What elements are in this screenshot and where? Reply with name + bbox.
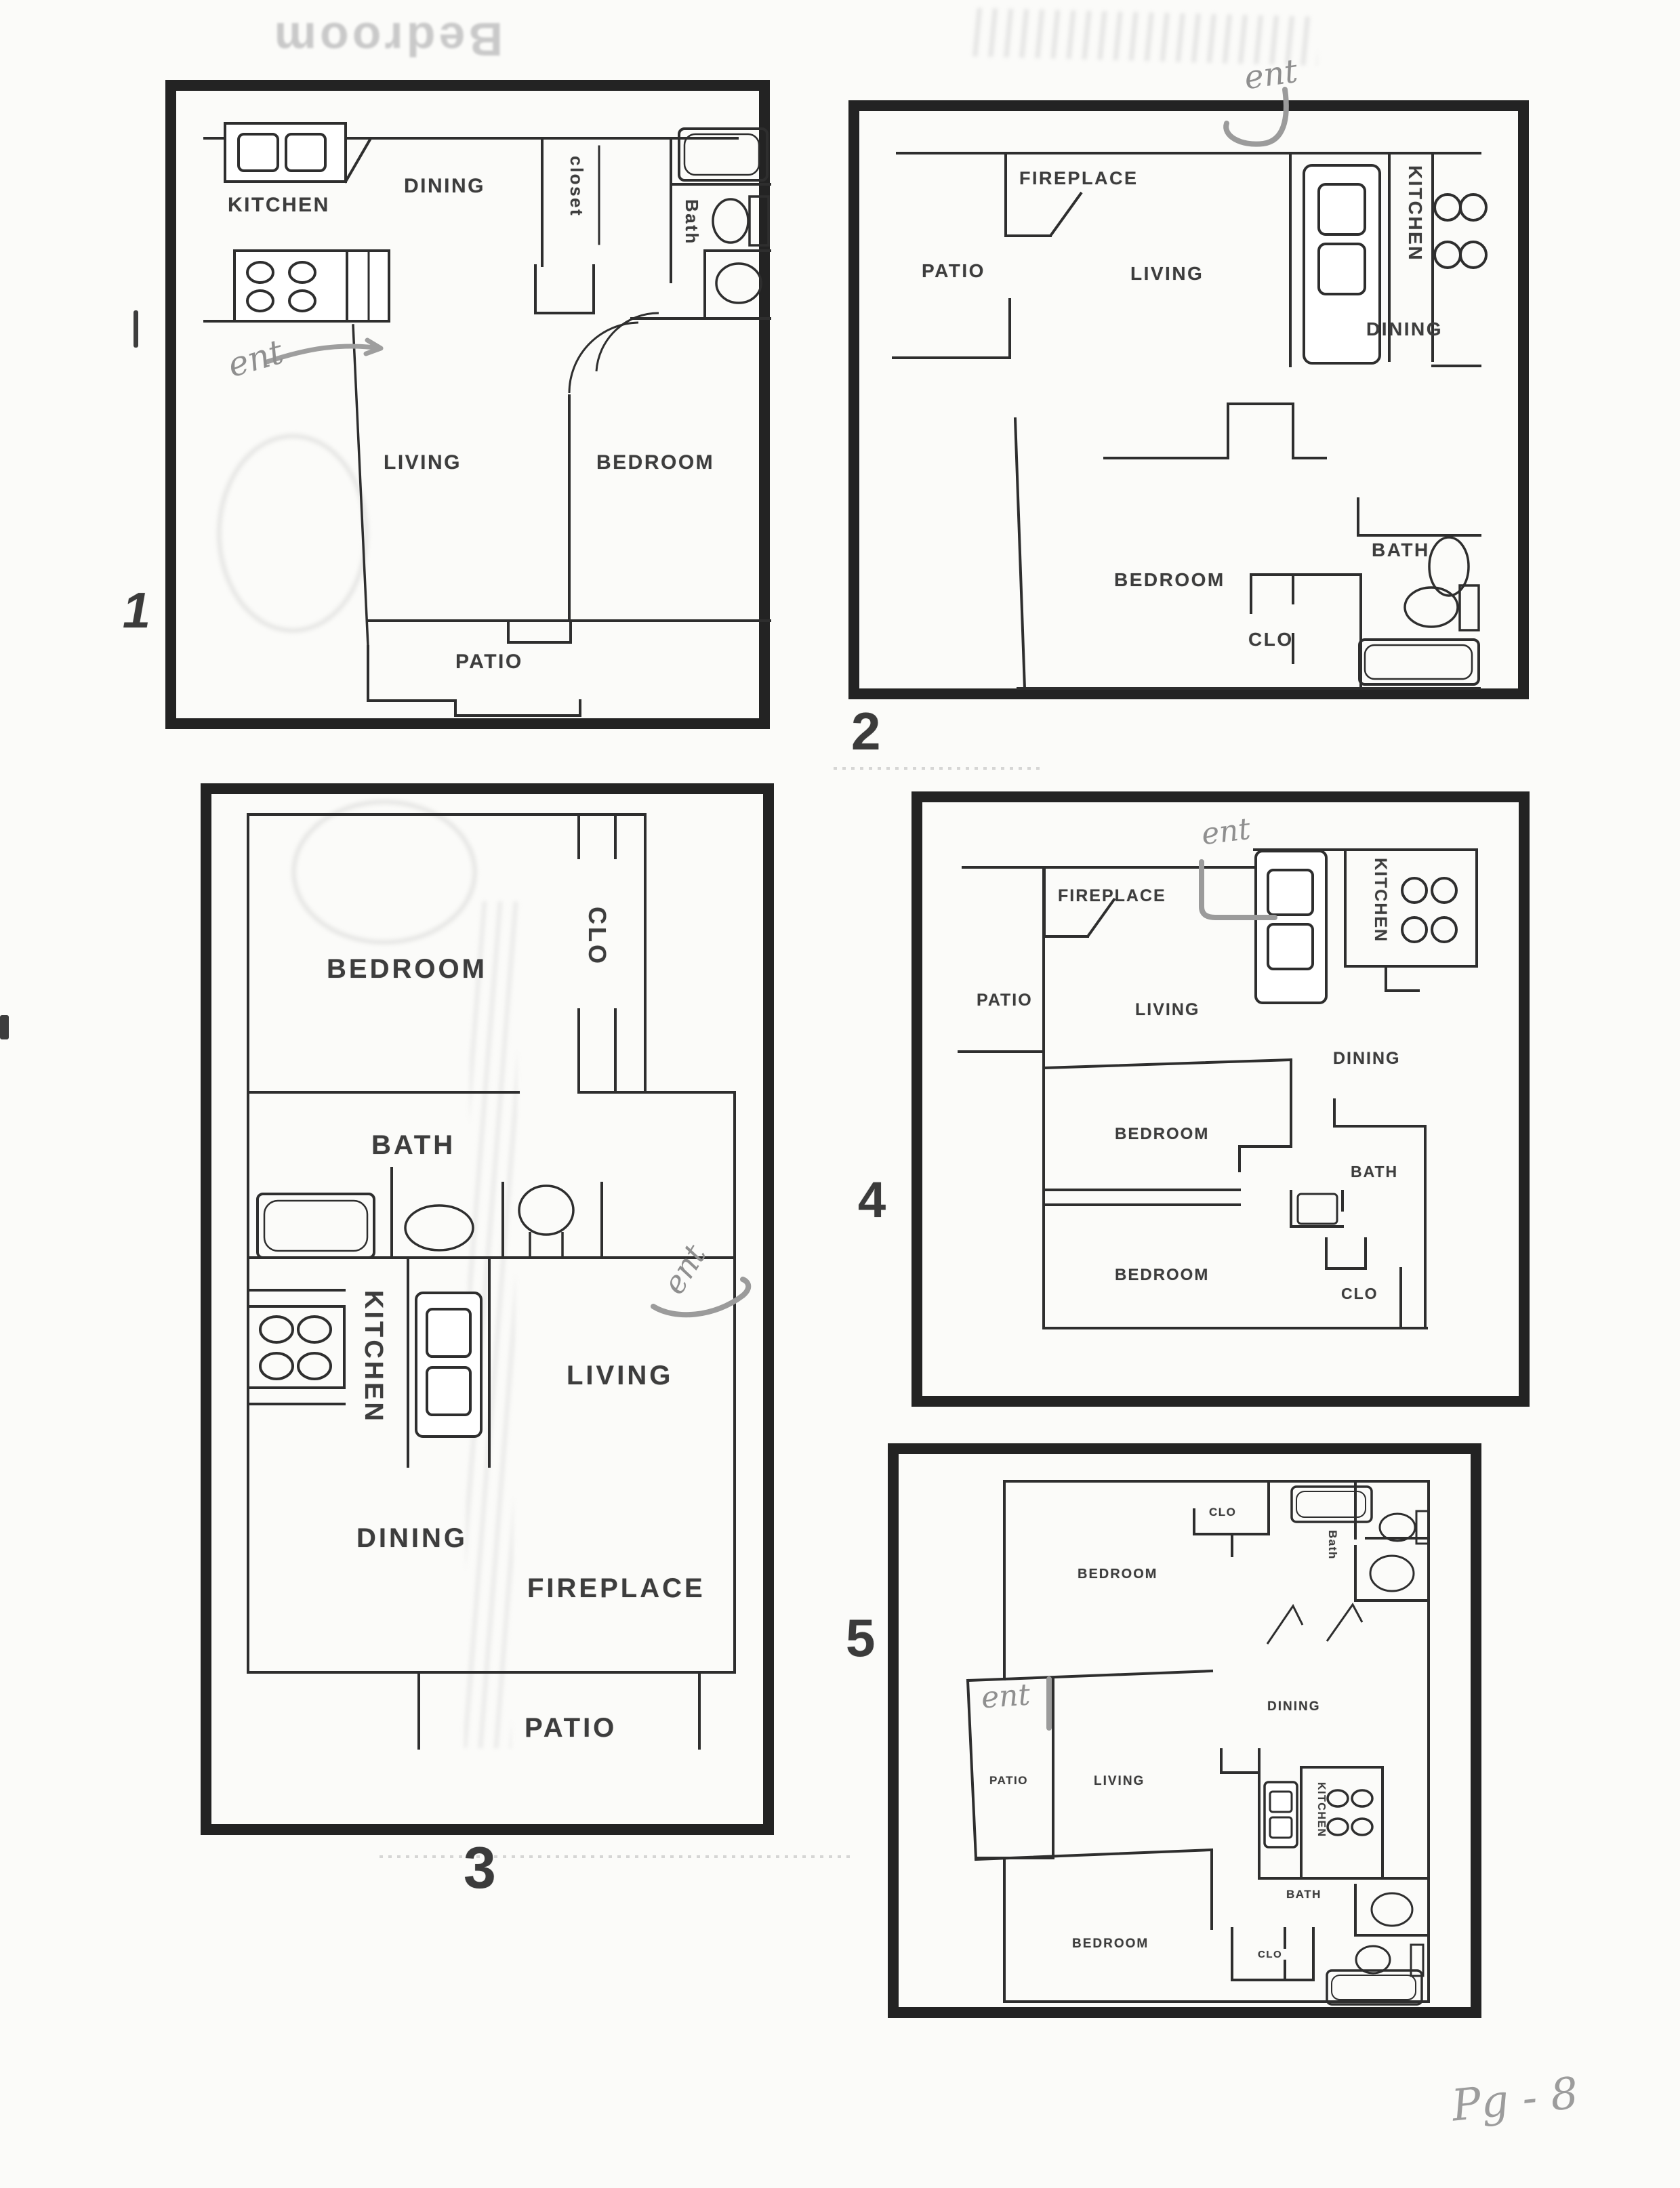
plan-border <box>893 1449 1476 2012</box>
stove-burners-icon <box>1328 1790 1372 1835</box>
stove-burners-icon <box>248 1306 344 1388</box>
room-label-patio: PATIO <box>525 1713 617 1743</box>
stove-burners-icon <box>1402 878 1456 942</box>
page-number-handwritten: Pg - 8 <box>1450 2068 1581 2131</box>
room-label-living: LIVING <box>1094 1774 1145 1789</box>
room-label-bedroom-1: BEDROOM <box>1115 1125 1209 1144</box>
plan-number-3: 3 <box>464 1835 496 1902</box>
sink-oval-icon <box>1372 1893 1412 1926</box>
room-label-bath-2: BATH <box>1286 1888 1322 1901</box>
plan-number-2: 2 <box>851 701 880 762</box>
room-label-closet-1: CLO <box>1209 1506 1236 1519</box>
plan-number-1: 1 <box>119 581 157 639</box>
sink-oval-icon <box>1370 1556 1414 1591</box>
toilet-icon <box>519 1186 573 1258</box>
floor-plan-2: FIREPLACE PATIO LIVING KITCHEN DINING BE… <box>848 100 1529 699</box>
room-label-kitchen: KITCHEN <box>1404 165 1426 262</box>
room-label-closet: CLO <box>583 907 611 966</box>
bathtub-icon <box>1359 640 1479 684</box>
room-label-fireplace: FIREPLACE <box>527 1573 705 1604</box>
room-label-patio: PATIO <box>455 651 523 674</box>
room-label-kitchen: KITCHEN <box>1315 1782 1327 1838</box>
room-label-living: LIVING <box>384 451 462 474</box>
room-label-patio: PATIO <box>977 991 1033 1010</box>
room-label-dining: DINING <box>1366 318 1443 340</box>
bathtub-icon <box>679 129 767 180</box>
floor-plan-4: FIREPLACE PATIO LIVING KITCHEN DINING BE… <box>911 791 1530 1407</box>
door-swing-icon <box>569 323 638 393</box>
floor-plan-1: KITCHEN DINING closet Bath LIVING BEDROO… <box>165 80 770 729</box>
fireplace-icon <box>1050 192 1082 236</box>
scan-noise-line <box>380 1855 854 1858</box>
room-label-bath: BATH <box>371 1130 455 1161</box>
pencil-entry-stroke <box>1226 89 1286 144</box>
room-label-closet: CLO <box>1248 629 1294 651</box>
room-label-closet: CLO <box>1341 1285 1378 1303</box>
room-label-kitchen: KITCHEN <box>1370 858 1390 943</box>
kitchen-sink-icon <box>225 123 346 182</box>
floor-plan-5: BEDROOM CLO Bath DINING PATIO LIVING KIT… <box>888 1443 1481 2018</box>
room-label-closet-2: CLO <box>1258 1949 1282 1960</box>
double-sink-icon <box>1265 1782 1297 1847</box>
room-label-living: LIVING <box>567 1361 673 1391</box>
room-label-bedroom-2: BEDROOM <box>1115 1266 1209 1285</box>
handwritten-ent-annotation: ent <box>980 1678 1031 1716</box>
room-label-patio: PATIO <box>922 260 985 282</box>
plan-number-5: 5 <box>846 1607 875 1669</box>
handwritten-ent-annotation: ent <box>1200 812 1252 852</box>
scan-edge-mark <box>0 1015 9 1039</box>
scan-edge-mark <box>134 310 138 348</box>
bathtub-icon <box>1327 1970 1422 2004</box>
interior-walls <box>968 1481 1429 2002</box>
room-label-kitchen: KITCHEN <box>358 1290 388 1424</box>
toilet-icon <box>1405 585 1479 630</box>
room-label-bedroom-1: BEDROOM <box>1078 1567 1157 1582</box>
room-label-dining: DINING <box>1267 1699 1321 1714</box>
toilet-icon <box>1298 1194 1337 1224</box>
bathtub-icon <box>1292 1487 1372 1522</box>
room-label-living: LIVING <box>1130 263 1204 285</box>
stove-burners-icon <box>234 251 389 321</box>
door-swing-icon <box>1267 1605 1362 1644</box>
bleed-through-text: Bedroom <box>239 12 503 66</box>
room-label-bedroom: BEDROOM <box>1114 569 1225 591</box>
bathtub-icon <box>258 1194 374 1258</box>
room-label-bath: BATH <box>1351 1163 1398 1181</box>
handwritten-ent-annotation: ent <box>1242 52 1300 97</box>
interior-walls <box>893 153 1480 688</box>
double-sink-icon <box>416 1293 481 1437</box>
double-sink-icon <box>1256 851 1326 1003</box>
floor-plan-3: BEDROOM CLO BATH KITCHEN LIVING DINING F… <box>201 783 774 1835</box>
room-label-bedroom: BEDROOM <box>327 954 487 985</box>
room-label-patio: PATIO <box>989 1774 1028 1788</box>
door-swing-icon <box>596 313 659 371</box>
sink-oval-icon <box>716 264 761 303</box>
room-label-bedroom: BEDROOM <box>596 451 714 474</box>
room-label-fireplace: FIREPLACE <box>1019 168 1139 189</box>
stove-burners-icon <box>1435 194 1486 268</box>
scan-noise-line <box>834 767 1044 770</box>
room-label-dining: DINING <box>356 1523 468 1554</box>
room-label-dining: DINING <box>1333 1049 1401 1069</box>
room-label-living: LIVING <box>1135 1000 1200 1020</box>
room-label-bath: BATH <box>1372 539 1430 561</box>
room-label-bath-1: Bath <box>1326 1530 1339 1560</box>
room-label-kitchen: KITCHEN <box>228 194 330 217</box>
sink-oval-icon <box>405 1205 473 1250</box>
room-label-closet: closet <box>566 156 587 217</box>
room-label-bedroom-2: BEDROOM <box>1072 1937 1149 1952</box>
interior-walls <box>959 850 1477 1328</box>
room-label-dining: DINING <box>404 175 485 198</box>
plan-number-4: 4 <box>858 1171 886 1229</box>
room-label-fireplace: FIREPLACE <box>1058 886 1166 906</box>
room-label-bath: Bath <box>681 199 702 245</box>
